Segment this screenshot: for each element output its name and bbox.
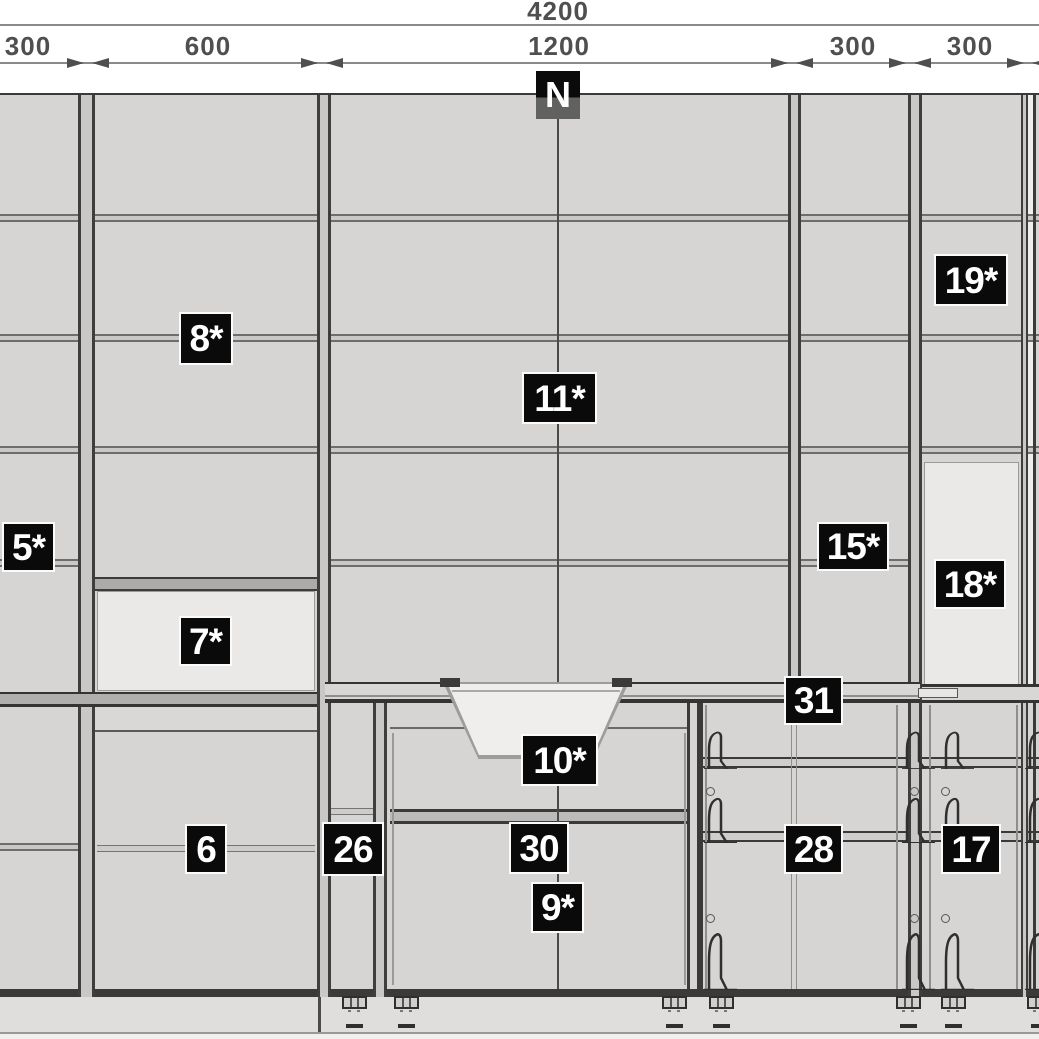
foot-clip-1: [394, 996, 419, 1009]
system-hole-1: [910, 787, 919, 796]
unit-label-u15: 15*: [817, 522, 889, 571]
filler26-split-line: [331, 808, 373, 815]
foot-pad-4: [900, 1024, 917, 1028]
floor-strip: [0, 1034, 1039, 1039]
tall-unit-thick-shelf: [95, 577, 317, 591]
sink-unit-side-left: [392, 733, 394, 985]
dimension-arrow-1: [92, 58, 109, 68]
segment-dimension-line: [0, 62, 1039, 64]
colE-right-edge: [1021, 95, 1028, 997]
foot-dot-b-5: [956, 1010, 959, 1012]
foot-dot-b-2: [677, 1010, 680, 1012]
plinth-divider-line: [318, 997, 321, 1032]
foot-pad-2: [666, 1024, 683, 1028]
dimension-arrow-6: [889, 58, 906, 68]
shelf-line-1: [0, 214, 1039, 222]
dimension-arrow-7: [914, 58, 931, 68]
foot-dot-a-5: [947, 1010, 950, 1012]
foot-clip-5: [941, 996, 966, 1009]
dimension-arrow-5: [796, 58, 813, 68]
drawer-runner-bracket-icon-r0-3: [1024, 731, 1039, 769]
foot-clip-4: [896, 996, 921, 1009]
inner-wall-2: [896, 705, 898, 989]
foot-dot-a-6: [1033, 1010, 1036, 1012]
system-hole-0: [706, 787, 715, 796]
base-bottom-line: [0, 989, 1039, 997]
drawer-runner-bracket-icon-r2-0: [703, 932, 737, 990]
dimension-arrow-3: [326, 58, 343, 68]
divider-colA-colB: [78, 95, 95, 997]
dimension-arrow-0: [67, 58, 84, 68]
segment-dimension-1: 600: [153, 31, 263, 62]
foot-pad-3: [713, 1024, 730, 1028]
dimension-arrow-8: [1007, 58, 1024, 68]
sink-clamp-right: [612, 678, 632, 687]
drawer-row-line-1: [697, 757, 1039, 768]
dimension-arrow-4: [771, 58, 788, 68]
foot-dot-a-1: [400, 1010, 403, 1012]
plinth: [0, 997, 1039, 1033]
unit-label-u18: 18*: [934, 559, 1006, 609]
foot-dot-b-1: [409, 1010, 412, 1012]
divider-colD-colE: [908, 95, 922, 997]
dimension-arrow-2: [301, 58, 318, 68]
foot-clip-6: [1027, 996, 1039, 1009]
drawer-runner-bracket-icon-r1-3: [1024, 797, 1039, 843]
system-hole-4: [910, 914, 919, 923]
drawer-runner-bracket-icon-r2-2: [940, 932, 974, 990]
unit-label-u19: 19*: [934, 254, 1008, 306]
bench-step-ledge: [918, 688, 958, 698]
drawer-runner-bracket-icon-r0-0: [703, 731, 737, 769]
unit-label-u6: 6: [185, 824, 227, 874]
foot-dot-b-4: [911, 1010, 914, 1012]
system-hole-3: [706, 914, 715, 923]
drawer-runner-bracket-icon-r1-0: [703, 797, 737, 843]
foot-dot-a-0: [348, 1010, 351, 1012]
sink-rim-line: [452, 690, 620, 692]
drawer-runner-bracket-icon-r0-1: [901, 731, 935, 769]
sink-unit-right-edge: [687, 700, 690, 997]
unit-label-u10: 10*: [521, 734, 598, 786]
foot-clip-0: [342, 996, 367, 1009]
unit-label-u31: 31: [784, 676, 843, 725]
foot-pad-0: [346, 1024, 363, 1028]
unit-label-u8: 8*: [179, 312, 233, 365]
overall-dimension: 4200: [498, 0, 618, 27]
foot-clip-3: [709, 996, 734, 1009]
foot-clip-2: [662, 996, 687, 1009]
foot-dot-a-2: [668, 1010, 671, 1012]
foot-dot-a-3: [715, 1010, 718, 1012]
foot-pad-5: [945, 1024, 962, 1028]
shelf-line-4-center: [331, 559, 788, 567]
tall-unit-mid-rail: [0, 692, 317, 707]
dimension-arrow-9: [1032, 58, 1039, 68]
drawer-runner-bracket-icon-r0-2: [940, 731, 974, 769]
inner-wall-4: [1016, 705, 1018, 989]
unit-label-u11: 11*: [522, 372, 597, 424]
unit-label-u26: 26: [322, 822, 384, 876]
segment-dimension-2: 1200: [504, 31, 614, 62]
adjacent-unit-edge-upper: [1033, 95, 1036, 684]
unit-label-u30: 30: [509, 822, 569, 874]
system-hole-2: [941, 787, 950, 796]
unit-label-u5: 5*: [2, 522, 55, 572]
foot-pad-1: [398, 1024, 415, 1028]
divider-colC-colD-upper: [788, 95, 801, 702]
drawer-runner-bracket-icon-r2-3: [1024, 932, 1039, 990]
system-hole-5: [941, 914, 950, 923]
foot-dot-b-0: [357, 1010, 360, 1012]
unit-label-u9: 9*: [531, 882, 584, 933]
foot-dot-b-3: [724, 1010, 727, 1012]
north-marker: N: [536, 71, 580, 119]
shelf-line-3: [0, 446, 1039, 454]
unit-label-u7: 7*: [179, 616, 232, 666]
foot-pad-6: [1031, 1024, 1039, 1028]
sink-unit-side-right: [684, 733, 686, 985]
drawer-runner-bracket-icon-r2-1: [901, 932, 935, 990]
base-unit6-top-rail: [95, 707, 317, 732]
sink-clamp-left: [440, 678, 460, 687]
unit-label-u28: 28: [784, 824, 843, 874]
left-column-door-split: [0, 843, 78, 851]
overall-dimension-line: [0, 24, 1039, 26]
elevation-drawing: 4200 300 600 1200 300 300: [0, 0, 1039, 1039]
shelf-line-2: [0, 334, 1039, 342]
unit-label-u17: 17: [941, 824, 1001, 874]
foot-dot-a-4: [902, 1010, 905, 1012]
drawer-runner-bracket-icon-r1-1: [901, 797, 935, 843]
